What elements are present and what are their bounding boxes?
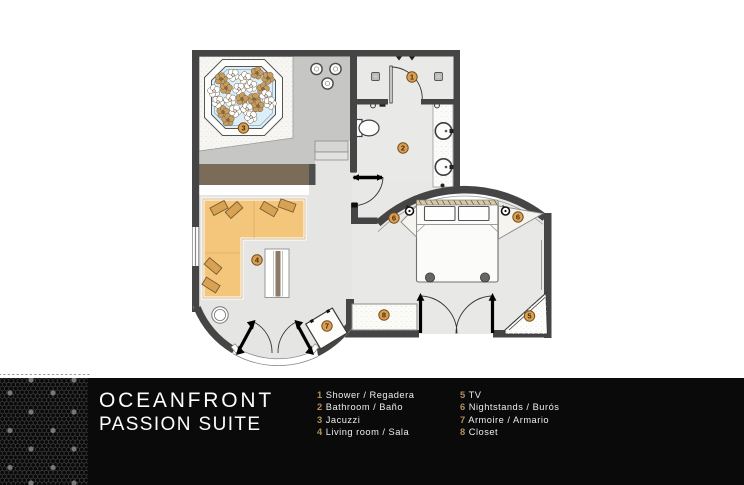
svg-text:6: 6: [516, 213, 520, 222]
svg-text:7: 7: [325, 322, 329, 331]
svg-text:8: 8: [382, 311, 386, 320]
svg-text:1: 1: [410, 73, 414, 82]
svg-text:3: 3: [241, 124, 245, 133]
svg-text:5: 5: [527, 312, 531, 321]
svg-text:6: 6: [392, 214, 396, 223]
svg-text:2: 2: [401, 144, 405, 153]
